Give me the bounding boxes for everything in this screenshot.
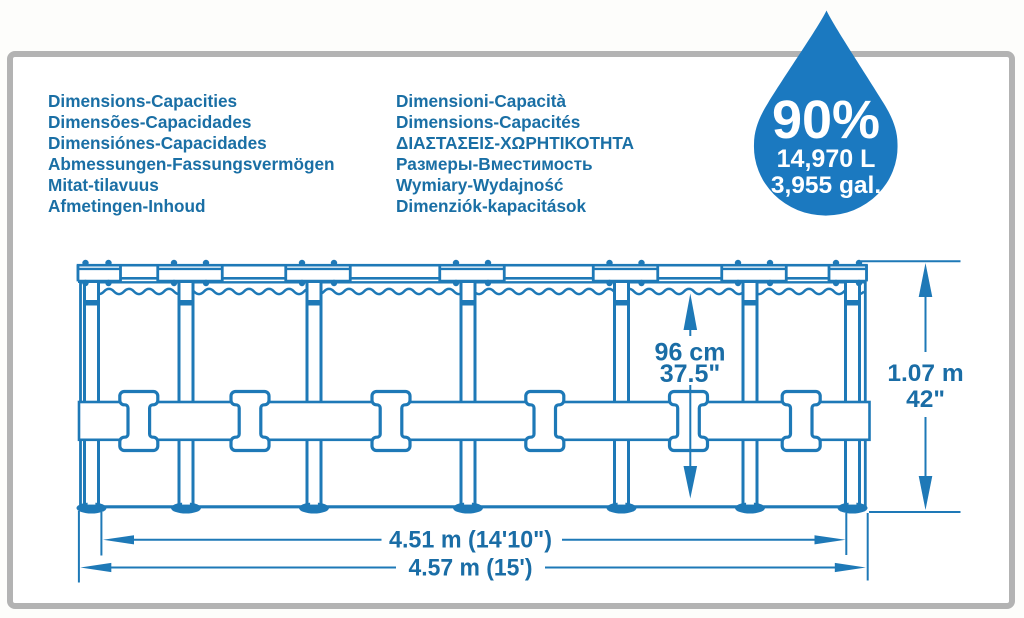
svg-text:Dimensões-Capacidades: Dimensões-Capacidades: [48, 112, 251, 132]
svg-text:Dimensiónes-Capacidades: Dimensiónes-Capacidades: [48, 133, 267, 153]
svg-text:Mitat-tilavuus: Mitat-tilavuus: [48, 175, 159, 195]
svg-text:Afmetingen-Inhoud: Afmetingen-Inhoud: [48, 196, 206, 216]
svg-text:Dimensions-Capacities: Dimensions-Capacities: [48, 91, 237, 111]
svg-text:14,970 L: 14,970 L: [777, 145, 876, 173]
svg-text:42": 42": [906, 386, 945, 413]
svg-text:1.07 m: 1.07 m: [887, 360, 963, 387]
svg-text:Размеры-Вместимость: Размеры-Вместимость: [396, 154, 593, 174]
svg-text:Dimensions-Capacités: Dimensions-Capacités: [396, 112, 580, 132]
svg-text:ΔΙΑΣΤΑΣΕΙΣ-ΧΩΡΗΤΙΚΟΤΗΤΑ: ΔΙΑΣΤΑΣΕΙΣ-ΧΩΡΗΤΙΚΟΤΗΤΑ: [396, 133, 634, 153]
svg-text:4.51 m (14'10"): 4.51 m (14'10"): [389, 527, 552, 554]
svg-text:37.5": 37.5": [660, 360, 721, 388]
svg-text:Wymiary-Wydajność: Wymiary-Wydajność: [396, 175, 564, 195]
svg-text:3,955 gal.: 3,955 gal.: [771, 172, 881, 199]
svg-text:Abmessungen-Fassungsvermögen: Abmessungen-Fassungsvermögen: [48, 154, 335, 174]
svg-text:4.57 m (15'): 4.57 m (15'): [409, 554, 533, 581]
svg-text:Dimenziók-kapacitások: Dimenziók-kapacitások: [396, 196, 587, 216]
svg-text:90%: 90%: [772, 90, 880, 150]
svg-text:Dimensioni-Capacità: Dimensioni-Capacità: [396, 91, 566, 111]
